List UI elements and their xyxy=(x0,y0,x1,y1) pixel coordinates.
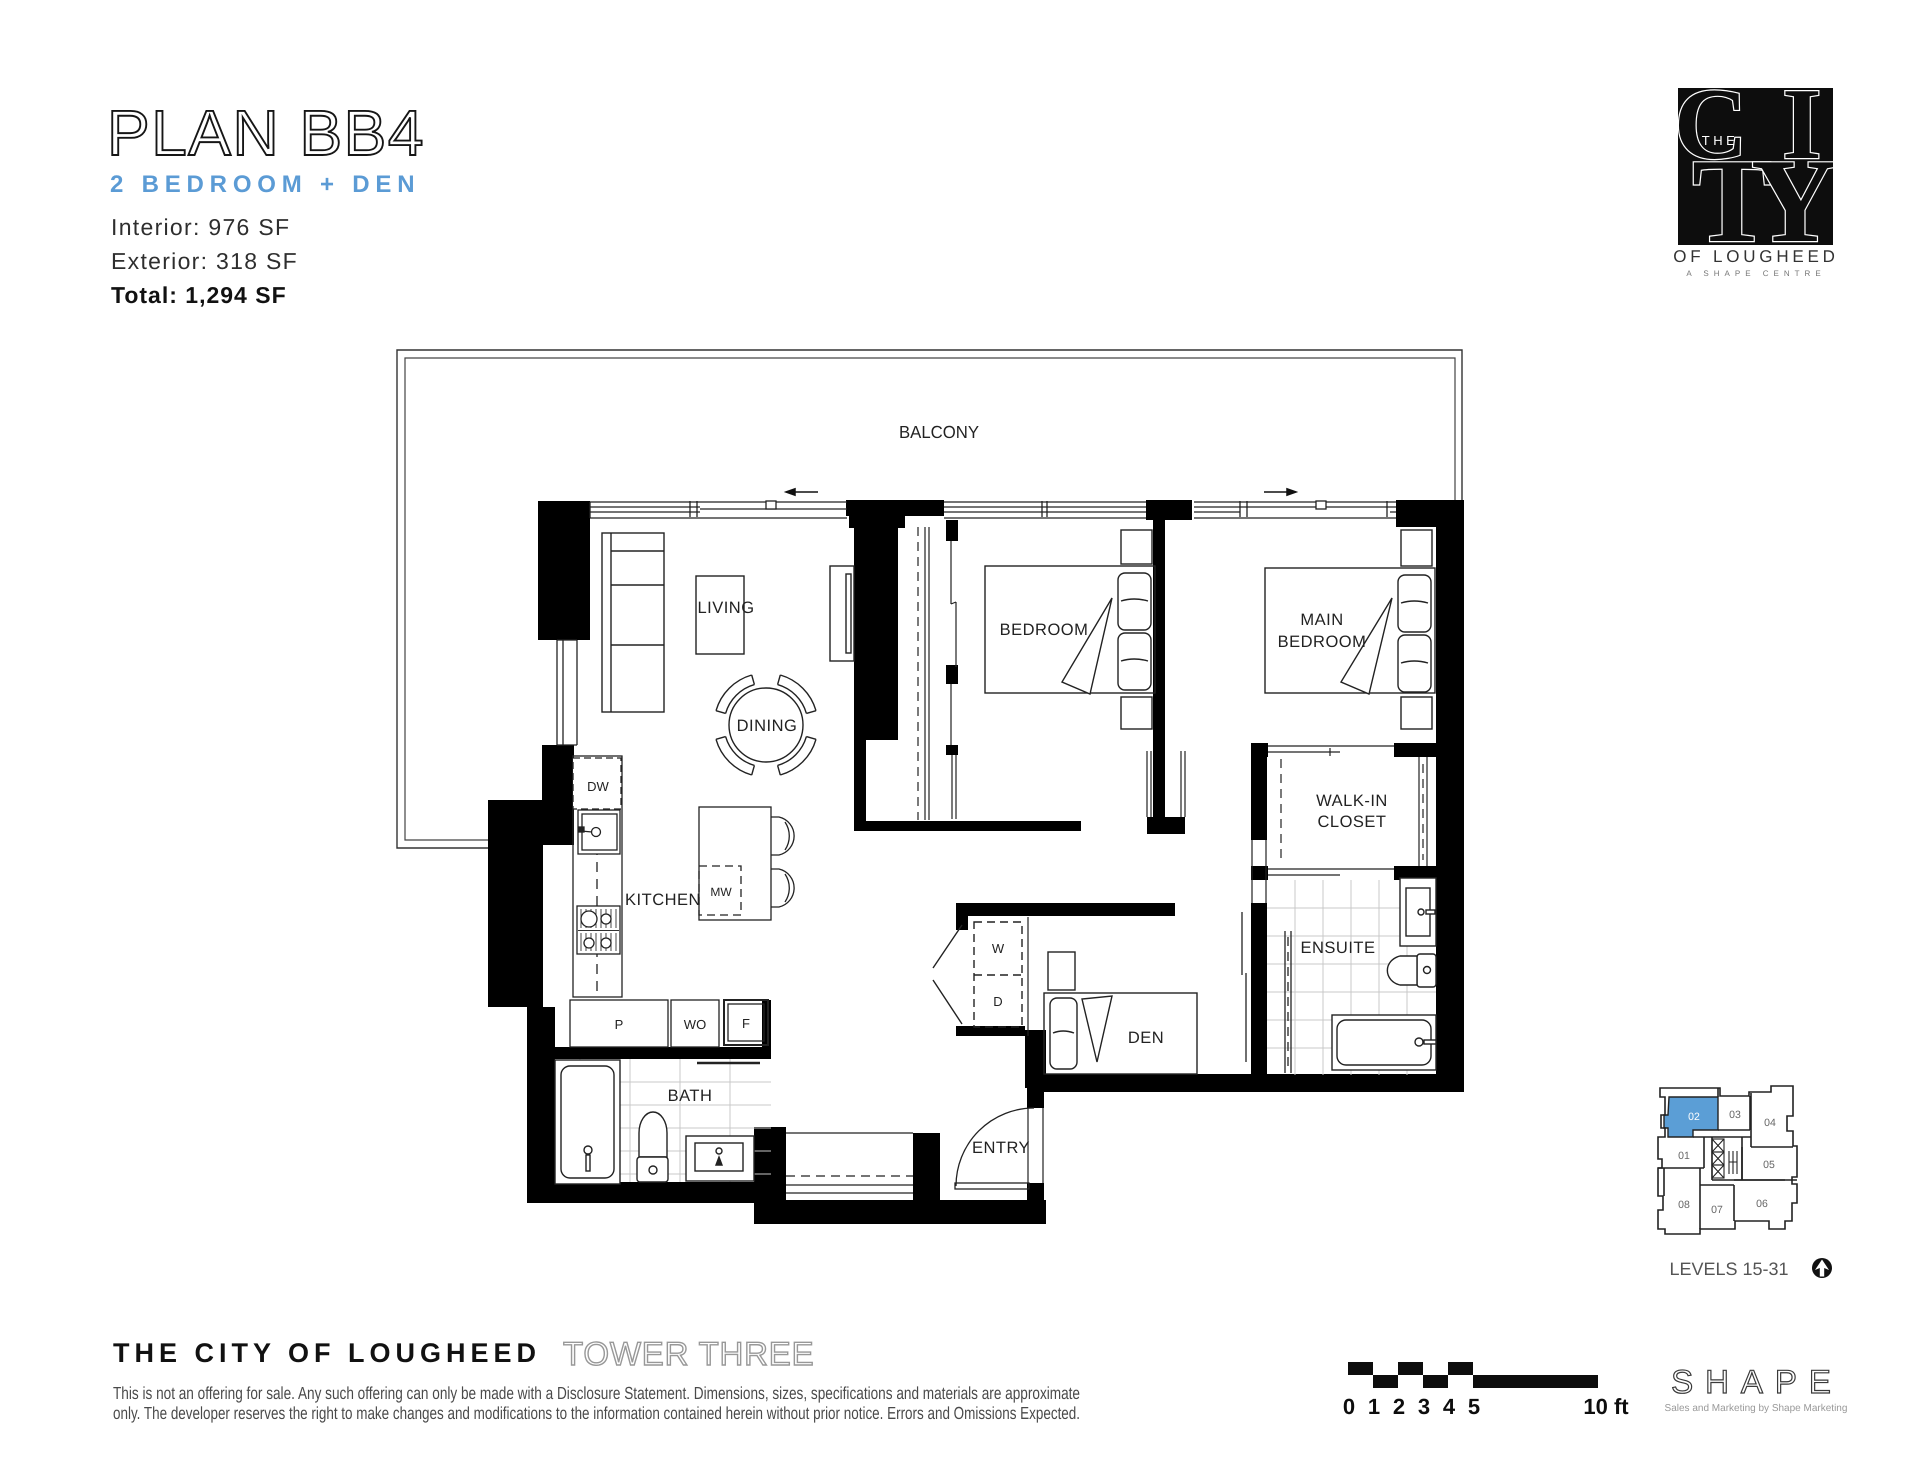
svg-text:Exterior: 318 SF: Exterior: 318 SF xyxy=(111,248,298,274)
svg-text:4: 4 xyxy=(1443,1394,1456,1419)
svg-text:A SHAPE CENTRE: A SHAPE CENTRE xyxy=(1686,269,1825,278)
svg-text:0: 0 xyxy=(1343,1394,1355,1419)
svg-text:F: F xyxy=(742,1016,750,1031)
svg-text:OF LOUGHEED: OF LOUGHEED xyxy=(1673,247,1839,266)
svg-text:BALCONY: BALCONY xyxy=(899,422,979,442)
svg-text:Interior: 976 SF: Interior: 976 SF xyxy=(111,214,290,240)
svg-text:2 BEDROOM + DEN: 2 BEDROOM + DEN xyxy=(110,171,420,198)
svg-text:WALK-IN: WALK-IN xyxy=(1316,792,1388,810)
svg-text:This is not an offering for sa: This is not an offering for sale. Any su… xyxy=(113,1383,1080,1403)
svg-text:06: 06 xyxy=(1756,1198,1768,1210)
svg-text:THE CITY OF LOUGHEED: THE CITY OF LOUGHEED xyxy=(113,1338,541,1368)
svg-text:05: 05 xyxy=(1763,1159,1775,1171)
svg-text:DEN: DEN xyxy=(1128,1029,1164,1047)
svg-text:Total: 1,294 SF: Total: 1,294 SF xyxy=(111,282,287,308)
svg-text:KITCHEN: KITCHEN xyxy=(625,891,701,909)
svg-text:D: D xyxy=(993,994,1002,1009)
svg-text:TOWER THREE: TOWER THREE xyxy=(563,1335,814,1372)
svg-text:LEVELS 15-31: LEVELS 15-31 xyxy=(1669,1259,1788,1279)
svg-text:ENSUITE: ENSUITE xyxy=(1300,939,1375,957)
svg-text:2: 2 xyxy=(1393,1394,1405,1419)
svg-text:DW: DW xyxy=(587,779,609,794)
svg-text:3: 3 xyxy=(1418,1394,1430,1419)
svg-text:P: P xyxy=(615,1017,624,1032)
svg-text:LIVING: LIVING xyxy=(697,599,754,617)
svg-text:ENTRY: ENTRY xyxy=(972,1139,1030,1157)
svg-text:BEDROOM: BEDROOM xyxy=(1000,621,1089,639)
svg-text:SHAPE: SHAPE xyxy=(1671,1363,1843,1400)
svg-text:DINING: DINING xyxy=(737,717,798,735)
svg-text:BATH: BATH xyxy=(668,1087,713,1105)
svg-text:BEDROOM: BEDROOM xyxy=(1278,633,1367,651)
svg-text:CLOSET: CLOSET xyxy=(1317,813,1386,831)
svg-text:THE: THE xyxy=(1702,133,1739,148)
svg-text:MW: MW xyxy=(710,885,732,899)
svg-text:01: 01 xyxy=(1678,1150,1690,1162)
svg-text:Sales and Marketing by Shape M: Sales and Marketing by Shape Marketing xyxy=(1665,1403,1848,1414)
svg-text:02: 02 xyxy=(1688,1111,1700,1123)
svg-text:WO: WO xyxy=(684,1017,706,1032)
svg-text:5: 5 xyxy=(1468,1394,1480,1419)
svg-text:08: 08 xyxy=(1678,1199,1690,1211)
svg-text:only. The developer reserves t: only. The developer reserves the right t… xyxy=(113,1403,1080,1423)
svg-text:03: 03 xyxy=(1729,1109,1741,1121)
svg-text:07: 07 xyxy=(1711,1204,1723,1216)
svg-text:1: 1 xyxy=(1368,1394,1380,1419)
svg-text:W: W xyxy=(992,941,1005,956)
svg-text:04: 04 xyxy=(1764,1117,1776,1129)
svg-text:MAIN: MAIN xyxy=(1300,611,1343,629)
svg-text:PLAN BB4: PLAN BB4 xyxy=(107,97,425,169)
svg-text:10 ft: 10 ft xyxy=(1583,1394,1629,1419)
